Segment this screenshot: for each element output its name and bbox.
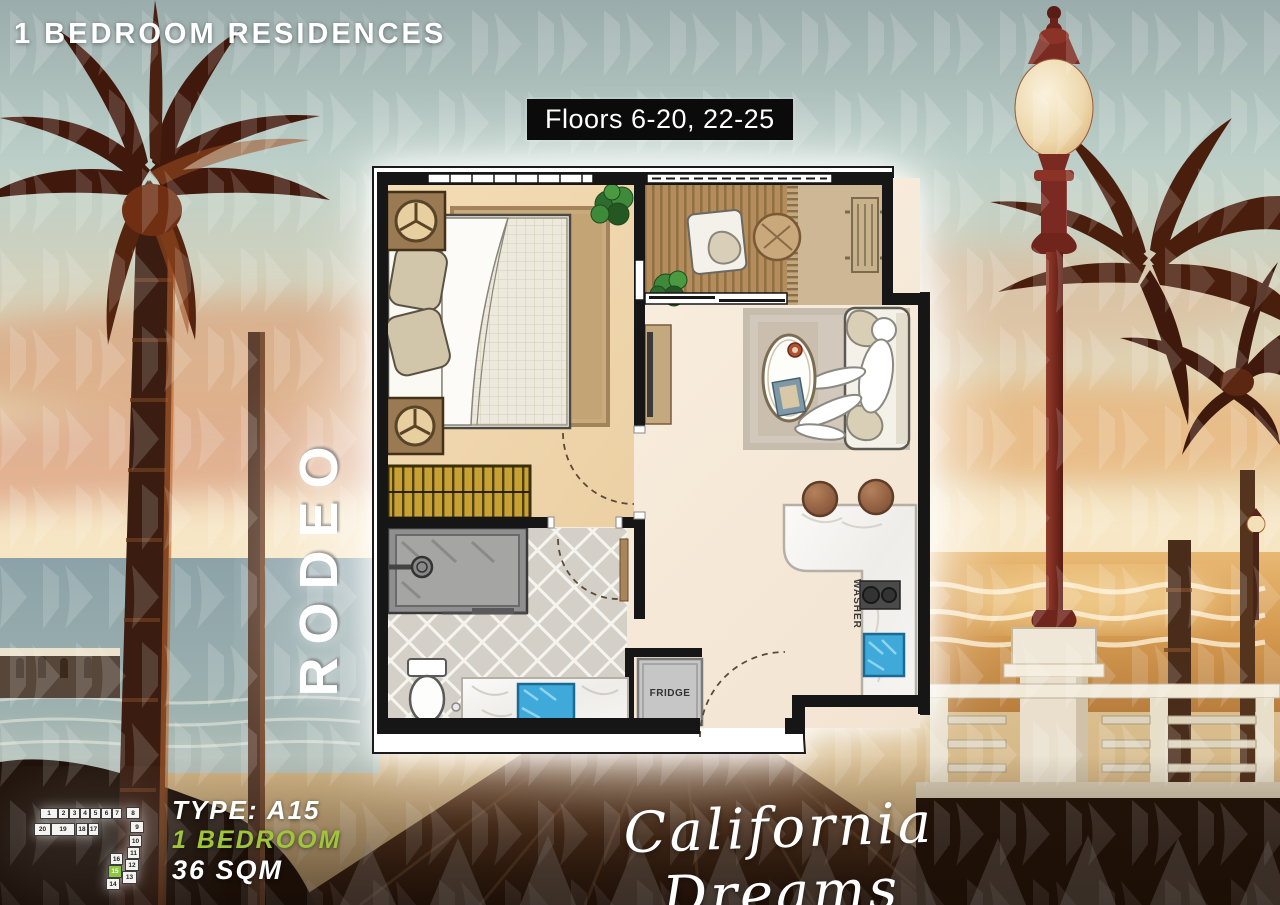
- coffee-table: [763, 335, 815, 421]
- tv-cabinet: [645, 325, 671, 424]
- key-plan-unit-16: 16: [110, 853, 123, 865]
- key-plan-unit-9: 9: [130, 821, 144, 833]
- key-plan-unit-3: 3: [69, 808, 80, 819]
- key-plan-unit-4: 4: [80, 808, 90, 819]
- key-plan-unit-7: 7: [112, 808, 122, 819]
- unit-type-label: TYPE: A15: [172, 795, 341, 826]
- ac-unit: [845, 198, 885, 272]
- unit-bedrooms-label: 1 BEDROOM: [172, 826, 341, 856]
- key-plan-unit-5: 5: [90, 808, 101, 819]
- key-plan-unit-20: 20: [34, 823, 51, 836]
- bar-stool: [859, 480, 893, 514]
- key-plan-unit-6: 6: [101, 808, 112, 819]
- tagline: California Dreams: [508, 787, 1052, 905]
- shower: [388, 528, 527, 614]
- cooktop: [860, 581, 900, 609]
- poster: WASHER FRIDGE: [0, 0, 1280, 905]
- floor-plan: WASHER FRIDGE: [372, 162, 934, 762]
- balcony-chair: [687, 209, 747, 274]
- page-title: 1 BEDROOM RESIDENCES: [14, 18, 446, 51]
- unit-info: TYPE: A15 1 BEDROOM 36 SQM: [172, 795, 341, 887]
- key-plan-unit-17: 17: [88, 823, 99, 836]
- unit-area-label: 36 SQM: [172, 855, 341, 887]
- key-plan-unit-18: 18: [76, 823, 88, 836]
- nightstand-bottom: [387, 398, 443, 454]
- bathroom-door: [620, 539, 628, 601]
- fridge-label: FRIDGE: [650, 688, 691, 699]
- nightstand-top: [387, 192, 445, 250]
- key-plan: 1234567891011121314151617181920: [30, 802, 152, 897]
- key-plan-unit-11: 11: [127, 847, 140, 859]
- key-plan-unit-13: 13: [122, 871, 137, 884]
- key-plan-unit-8: 8: [126, 807, 140, 819]
- balcony-table: [754, 214, 800, 260]
- bar-stool: [803, 482, 837, 516]
- key-plan-unit-2: 2: [58, 808, 69, 819]
- key-plan-unit-10: 10: [129, 835, 142, 847]
- floor-plan-container: WASHER FRIDGE: [372, 162, 934, 767]
- wardrobe: [388, 466, 530, 518]
- floors-badge: Floors 6-20, 22-25: [527, 99, 793, 140]
- tower-name-vertical: RODEO: [288, 415, 348, 715]
- kitchen-sink: [864, 634, 904, 676]
- washer-label: WASHER: [851, 579, 862, 629]
- key-plan-unit-19: 19: [51, 823, 75, 836]
- fridge: FRIDGE: [638, 659, 702, 725]
- key-plan-unit-1: 1: [40, 808, 58, 819]
- key-plan-unit-14: 14: [106, 878, 120, 890]
- key-plan-unit-15: 15: [108, 865, 122, 878]
- key-plan-unit-12: 12: [125, 859, 139, 871]
